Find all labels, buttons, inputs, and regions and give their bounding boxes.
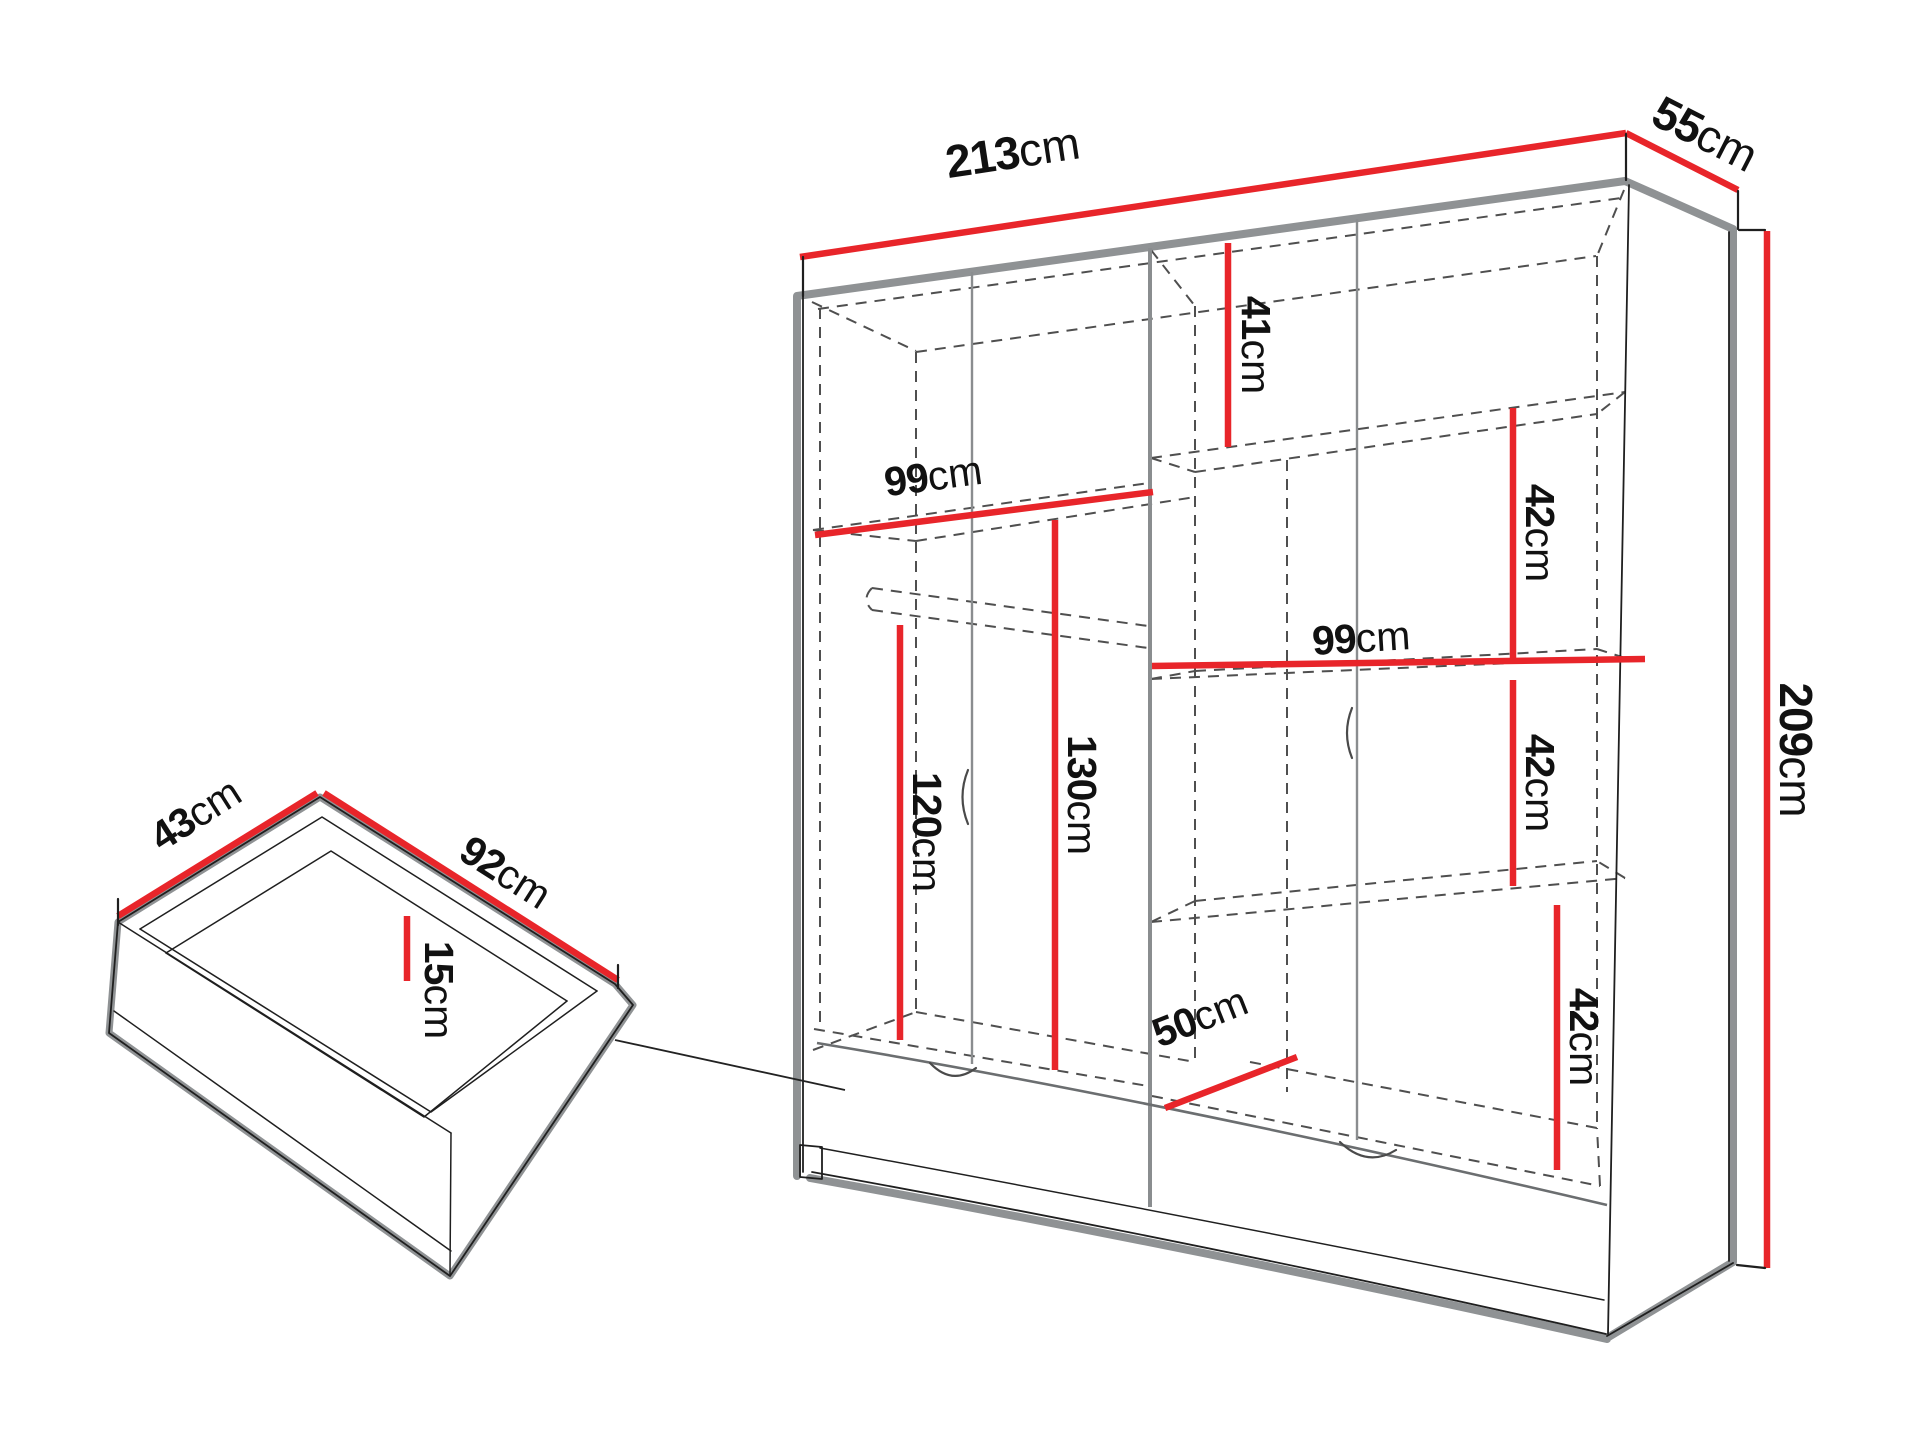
dim-label-99-right: 99cm	[1311, 612, 1412, 664]
dim-label-120: 120cm	[904, 772, 950, 892]
dim-label-drawer-15: 15cm	[416, 941, 462, 1039]
dim-label-42-bottom: 42cm	[1561, 988, 1607, 1086]
dim-label-42-top: 42cm	[1517, 484, 1563, 582]
wardrobe-drawing: 213cm 55cm 209cm 41cm 99cm 99cm 42cm 42c…	[797, 85, 1822, 1339]
drawer-silhouette-fill	[109, 797, 633, 1276]
dim-label-width: 213cm	[942, 116, 1083, 188]
dim-label-depth: 55cm	[1644, 85, 1766, 181]
wardrobe-front-face	[803, 180, 1627, 1335]
tick-209-bottom	[1737, 1265, 1765, 1268]
drawer-front-panel-right-edge	[450, 1133, 451, 1274]
drawer-pointer-line	[615, 1040, 845, 1090]
drawer-detail-drawing: 43cm 92cm 15cm	[109, 768, 633, 1276]
dim-label-41: 41cm	[1233, 296, 1279, 394]
diagram-canvas: 213cm 55cm 209cm 41cm 99cm 99cm 42cm 42c…	[0, 0, 1921, 1441]
dim-label-130: 130cm	[1059, 735, 1105, 855]
dim-label-height: 209cm	[1770, 682, 1822, 817]
dim-label-42-middle: 42cm	[1517, 734, 1563, 832]
